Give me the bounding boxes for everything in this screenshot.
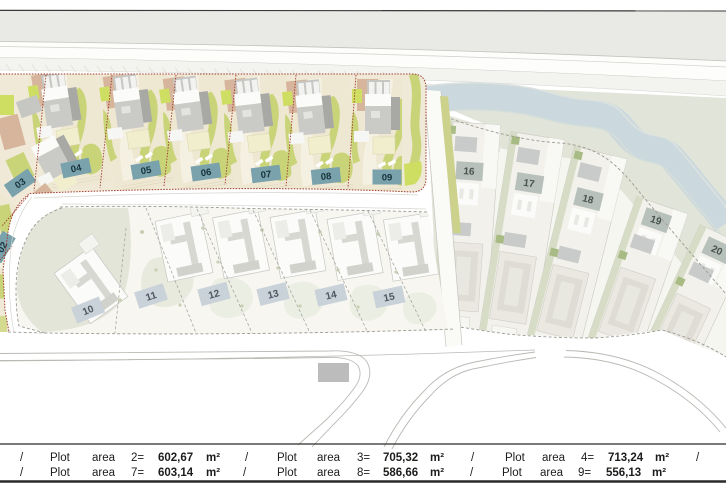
- svg-text:Plot: Plot: [277, 467, 298, 479]
- svg-text:m²: m²: [206, 467, 220, 479]
- svg-text:area: area: [92, 452, 116, 464]
- svg-text:Plot: Plot: [50, 467, 71, 479]
- svg-text:m²: m²: [430, 452, 444, 464]
- svg-text:602,67: 602,67: [158, 452, 193, 464]
- svg-text:8=: 8=: [357, 467, 370, 479]
- svg-text:area: area: [317, 467, 341, 479]
- svg-text:705,32: 705,32: [383, 452, 418, 464]
- svg-text:16: 16: [463, 166, 475, 178]
- svg-text:2=: 2=: [131, 452, 144, 464]
- svg-text:Plot: Plot: [502, 467, 523, 479]
- svg-text:603,14: 603,14: [158, 467, 194, 479]
- svg-text:area: area: [542, 452, 566, 464]
- svg-text:m²: m²: [655, 452, 669, 464]
- svg-text:07: 07: [260, 169, 272, 181]
- svg-text:area: area: [92, 467, 116, 479]
- svg-text:Plot: Plot: [277, 452, 298, 464]
- svg-text:586,66: 586,66: [383, 467, 418, 479]
- svg-text:06: 06: [200, 167, 212, 179]
- svg-text:m²: m²: [430, 467, 444, 479]
- svg-text:Plot: Plot: [50, 452, 71, 464]
- svg-text:4=: 4=: [581, 452, 594, 464]
- svg-text:7=: 7=: [131, 467, 144, 479]
- svg-text:09: 09: [382, 173, 393, 184]
- svg-text:Plot: Plot: [505, 452, 526, 464]
- svg-text:08: 08: [320, 171, 332, 183]
- svg-text:713,24: 713,24: [608, 452, 644, 464]
- svg-text:556,13: 556,13: [606, 467, 641, 479]
- svg-text:area: area: [540, 467, 564, 479]
- svg-text:m²: m²: [652, 467, 666, 479]
- svg-text:m²: m²: [206, 452, 220, 464]
- svg-text:17: 17: [522, 178, 535, 191]
- svg-text:area: area: [317, 452, 341, 464]
- svg-text:9=: 9=: [578, 467, 591, 479]
- svg-text:3=: 3=: [357, 452, 370, 464]
